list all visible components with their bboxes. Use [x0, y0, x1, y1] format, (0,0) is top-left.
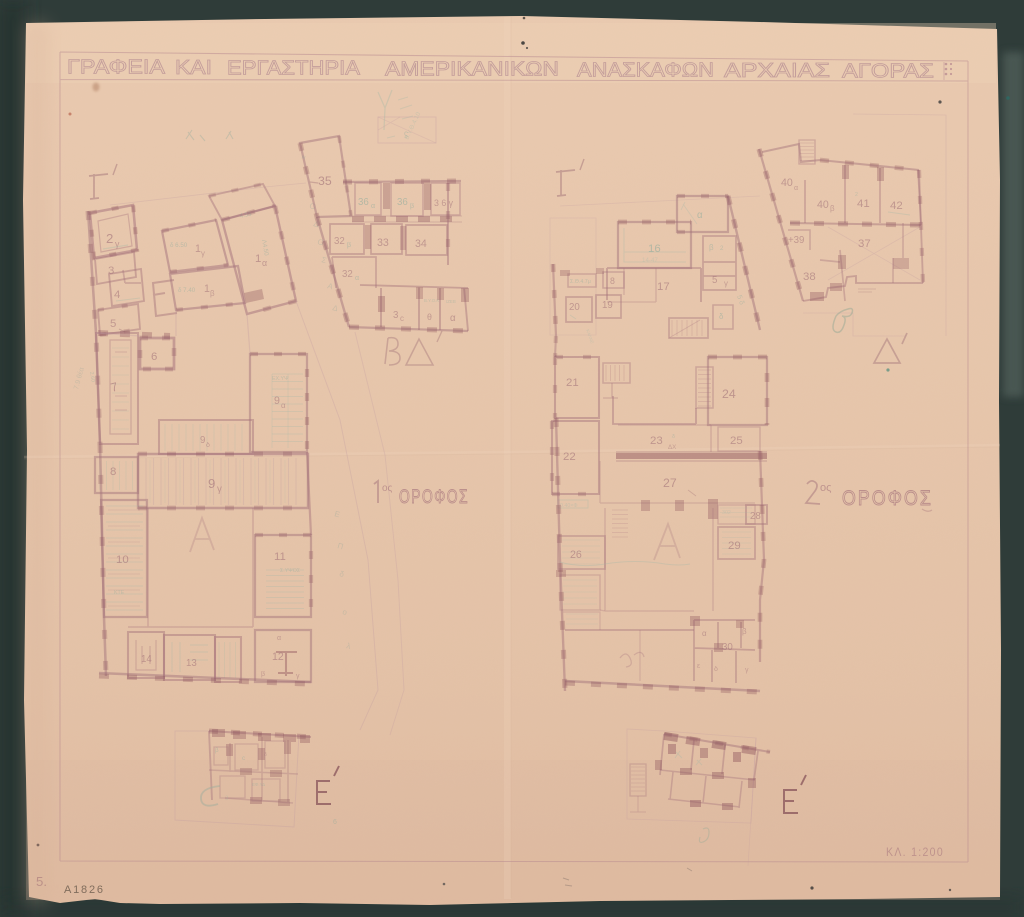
svg-text:5: 5: [712, 275, 717, 286]
svg-text:42: 42: [890, 200, 903, 212]
svg-text:40: 40: [817, 199, 829, 211]
svg-text:35: 35: [318, 174, 332, 188]
svg-text:β: β: [261, 671, 265, 678]
svg-text:0.40×Φ: 0.40×Φ: [560, 503, 578, 509]
svg-text:41: 41: [857, 198, 870, 210]
svg-text:α: α: [281, 401, 286, 410]
svg-text:5.: 5.: [36, 874, 47, 889]
svg-text:37: 37: [858, 238, 871, 250]
svg-text:302: 302: [722, 510, 731, 516]
svg-text:ΙΖΕΒ: ΙΖΕΒ: [446, 299, 456, 304]
svg-text:θ: θ: [427, 312, 432, 322]
svg-text:34: 34: [415, 238, 427, 250]
svg-text:δ: δ: [264, 752, 267, 758]
svg-text:ΔΧ: ΔΧ: [668, 444, 676, 451]
svg-text:δ 7.40: δ 7.40: [178, 287, 196, 294]
svg-text:9: 9: [274, 395, 280, 407]
svg-text:3: 3: [393, 310, 398, 321]
svg-text:2: 2: [855, 192, 858, 198]
svg-text:36: 36: [397, 197, 408, 208]
svg-text:9: 9: [208, 476, 215, 491]
svg-text:14: 14: [141, 654, 152, 665]
svg-text:38: 38: [803, 271, 816, 283]
svg-text:α: α: [794, 185, 798, 192]
svg-text:30: 30: [722, 642, 733, 653]
svg-text:13: 13: [186, 658, 197, 669]
svg-text:ΑΜΕΡΙΚΑΝΙΚΩΝ: ΑΜΕΡΙΚΑΝΙΚΩΝ: [385, 59, 559, 81]
svg-text:α: α: [262, 258, 267, 268]
svg-text:A1826: A1826: [64, 884, 105, 896]
svg-text:α: α: [371, 203, 375, 210]
svg-text:β: β: [210, 289, 215, 298]
svg-text:α: α: [355, 275, 359, 282]
svg-text:32: 32: [334, 236, 345, 247]
svg-text:γ: γ: [745, 667, 749, 674]
svg-text:ΕΦ.ΥΔ: ΕΦ.ΥΔ: [252, 782, 265, 787]
svg-text:6: 6: [151, 351, 157, 363]
svg-text:+39: +39: [788, 235, 804, 246]
svg-text:ΚΛ. 1:200: ΚΛ. 1:200: [886, 845, 944, 859]
svg-text:21: 21: [566, 377, 579, 389]
svg-text:12: 12: [272, 651, 284, 663]
svg-text:α: α: [450, 313, 456, 324]
svg-text:Σ.ΥΨΟΣ: Σ.ΥΨΟΣ: [280, 568, 301, 574]
svg-text:δ: δ: [672, 434, 675, 440]
svg-text:14-47: 14-47: [642, 257, 658, 264]
svg-text:β: β: [830, 204, 835, 213]
svg-text:10: 10: [116, 554, 129, 566]
svg-text:γ: γ: [724, 279, 728, 288]
svg-text:ΑΡΧΑΙΑΣ: ΑΡΧΑΙΑΣ: [724, 60, 830, 82]
svg-text:23: 23: [650, 435, 663, 447]
svg-text:ΚΤΕ: ΚΤΕ: [114, 590, 125, 596]
svg-text:5: 5: [110, 318, 116, 330]
svg-text:ος: ος: [382, 483, 393, 494]
svg-text:2: 2: [720, 245, 724, 252]
svg-text:ΕΧ.ΥΨ: ΕΧ.ΥΨ: [272, 376, 289, 382]
svg-text:β: β: [347, 242, 351, 249]
svg-text:δ: δ: [714, 666, 718, 673]
svg-text:δ: δ: [719, 312, 724, 321]
svg-text:c: c: [242, 755, 245, 762]
svg-text:ΕΡΓΑΣΤΗΡΙΑ: ΕΡΓΑΣΤΗΡΙΑ: [227, 58, 361, 80]
svg-text:ε: ε: [697, 663, 700, 670]
svg-text:ΑΝΑΣΚΑΦΩΝ: ΑΝΑΣΚΑΦΩΝ: [577, 60, 714, 82]
svg-text:ος: ος: [820, 482, 831, 494]
svg-text:c: c: [400, 314, 404, 323]
svg-text:γ: γ: [217, 484, 222, 495]
svg-text:δ: δ: [206, 442, 210, 449]
svg-text:ΓΡΑΦΕΙΑ: ΓΡΑΦΕΙΑ: [67, 57, 166, 79]
svg-text:2: 2: [106, 231, 113, 246]
svg-text:3 6 γ: 3 6 γ: [434, 198, 454, 208]
svg-text:ΚΑΙ: ΚΑΙ: [175, 57, 212, 79]
svg-text:11: 11: [274, 551, 286, 563]
svg-text:γ: γ: [296, 673, 300, 680]
svg-text:α: α: [277, 635, 281, 642]
svg-text:3: 3: [225, 795, 229, 802]
svg-text:α: α: [697, 210, 703, 221]
svg-text:20: 20: [569, 302, 580, 313]
svg-text:1: 1: [255, 253, 261, 265]
svg-text:17: 17: [657, 281, 670, 293]
svg-text:4: 4: [114, 289, 120, 301]
svg-text:ϛ: ϛ: [404, 129, 408, 138]
svg-text:24: 24: [722, 387, 736, 401]
svg-text:16: 16: [648, 243, 661, 255]
svg-text:β: β: [709, 243, 714, 252]
svg-text:α: α: [702, 629, 707, 638]
svg-text:36: 36: [358, 197, 369, 208]
svg-text:8: 8: [110, 466, 116, 478]
svg-text:β: β: [410, 203, 414, 210]
svg-text:6: 6: [333, 819, 337, 826]
svg-text:22: 22: [563, 451, 576, 463]
svg-text:33: 33: [377, 237, 389, 249]
svg-text:γ: γ: [201, 249, 205, 258]
svg-text:29: 29: [728, 540, 741, 552]
svg-text:25: 25: [730, 435, 743, 447]
svg-text:26: 26: [570, 549, 582, 561]
svg-text:β: β: [215, 747, 219, 754]
svg-text:32: 32: [342, 269, 353, 280]
svg-text:δ 6.50: δ 6.50: [170, 242, 188, 249]
svg-text:β: β: [742, 627, 747, 636]
svg-text:8: 8: [610, 276, 615, 286]
svg-text:9: 9: [200, 435, 205, 446]
svg-text:Β.Υ.Ο.Κ: Β.Υ.Ο.Κ: [424, 298, 439, 303]
svg-text:ΑΓΟΡΑΣ: ΑΓΟΡΑΣ: [842, 61, 934, 83]
svg-text:ΟΡΟΦΟΣ: ΟΡΟΦΟΣ: [399, 487, 469, 508]
svg-text:Σ.Θ.4.7μ: Σ.Θ.4.7μ: [570, 279, 591, 285]
svg-text:27: 27: [663, 476, 677, 490]
svg-text:ΟΡΟΦΟΣ: ΟΡΟΦΟΣ: [842, 487, 933, 510]
svg-text:40: 40: [781, 177, 793, 189]
